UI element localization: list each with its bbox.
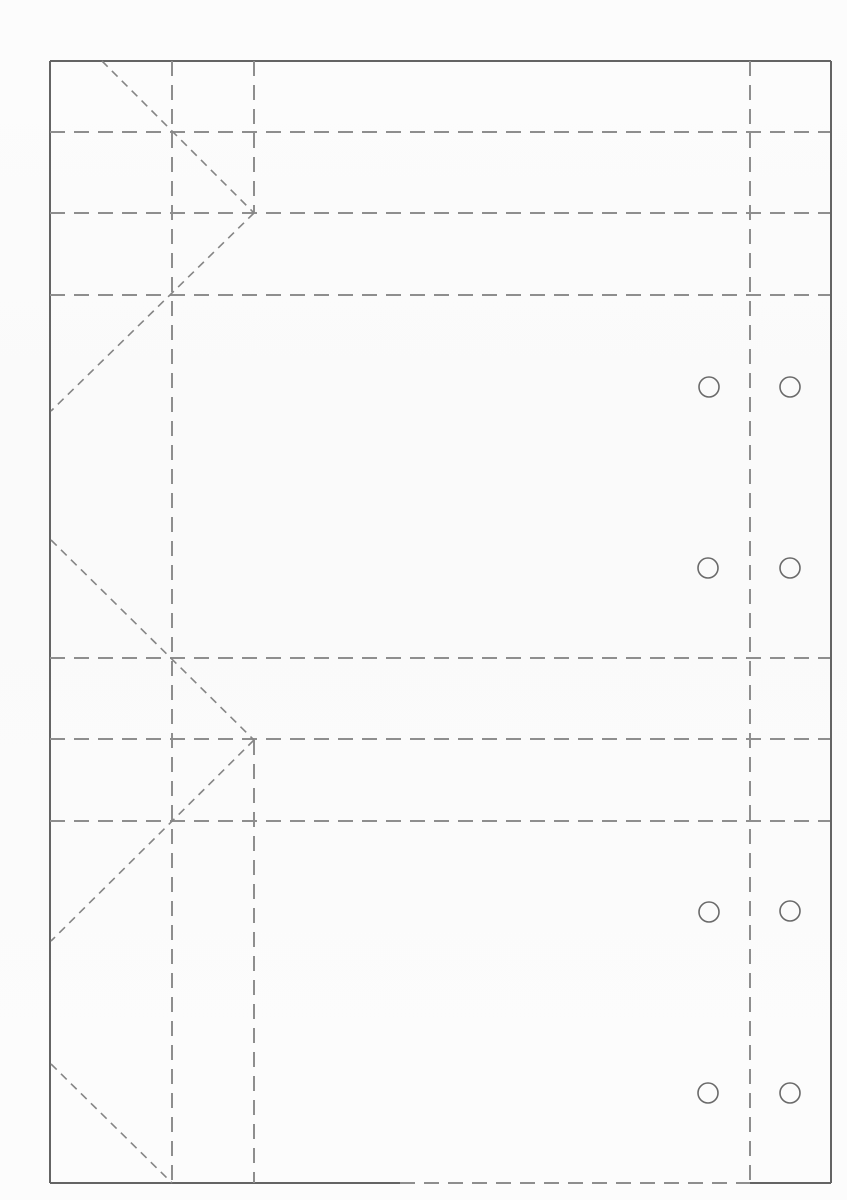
punch-hole-bottom-left-1 — [699, 902, 719, 922]
punch-hole-top-right-1 — [780, 377, 800, 397]
punch-hole-top-right-2 — [780, 558, 800, 578]
fold-diagonal-2 — [51, 213, 254, 411]
fold-diagonal-1 — [102, 61, 254, 213]
template-page — [0, 0, 847, 1200]
punch-hole-bottom-right-1 — [780, 901, 800, 921]
fold-diagonal-4 — [51, 740, 254, 941]
punch-hole-top-left-1 — [699, 377, 719, 397]
punch-hole-bottom-left-2 — [698, 1083, 718, 1103]
bag-template-diagram — [0, 0, 847, 1200]
punch-hole-bottom-right-2 — [780, 1083, 800, 1103]
fold-diagonal-5 — [51, 1064, 172, 1183]
punch-hole-top-left-2 — [698, 558, 718, 578]
fold-diagonal-3 — [51, 540, 254, 740]
